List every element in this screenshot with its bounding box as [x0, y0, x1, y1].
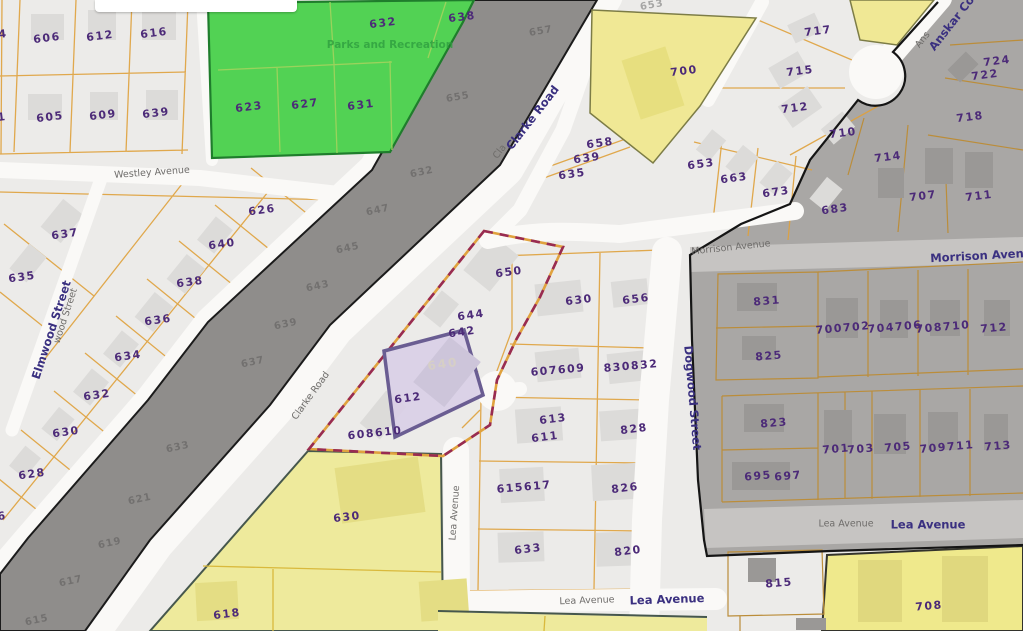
- parcel-map[interactable]: 46066126161605609639632638623627631Parks…: [0, 0, 1023, 631]
- map-canvas: [0, 0, 1023, 631]
- yellow-zone-708: [822, 546, 1023, 631]
- blank-overlay-box: [95, 0, 297, 12]
